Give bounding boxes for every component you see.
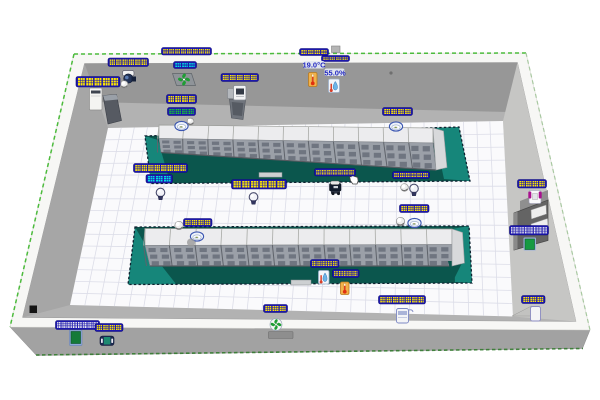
svg-text:19.0°C: 19.0°C <box>302 61 326 70</box>
svg-text:55.0%: 55.0% <box>324 69 346 78</box>
